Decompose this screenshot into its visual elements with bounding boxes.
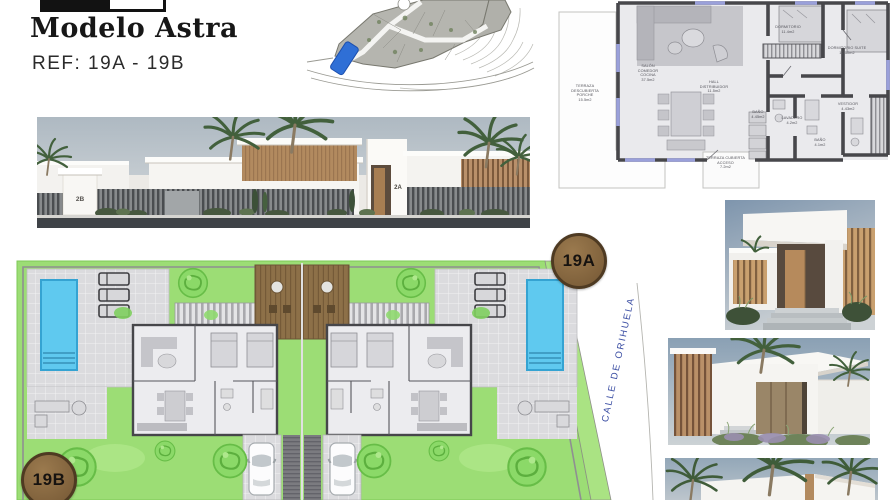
- location-map-drawing: [305, 0, 535, 95]
- room-label-lavadero: LAVADERO 4.2m2: [775, 116, 809, 125]
- brochure-page: Modelo Astra REF: 19A - 19B: [0, 0, 890, 500]
- page-title: Modelo Astra: [30, 13, 238, 44]
- villa-render-partial-drawing: [665, 458, 878, 500]
- room-label-terraza-descubierta: TERRAZA DESCUBIERTA PORCHE 15.5m2: [565, 84, 605, 103]
- glass-doors: [756, 382, 807, 434]
- road: [37, 218, 530, 228]
- room-label-bano: BAÑO 4.45m2: [743, 110, 773, 119]
- slat-fence-far-left: [37, 193, 67, 215]
- street-label: CALLE DE ORIHUELA: [600, 296, 637, 423]
- photo-villa-render: [668, 338, 870, 445]
- room-label-bano-suite: BAÑO 4.1m2: [805, 138, 835, 147]
- steps: [763, 308, 851, 330]
- room-label-salon: SALÓN COMEDOR COCINA 37.5m2: [628, 64, 668, 83]
- elevation-render: 2B 2A: [37, 117, 530, 228]
- villa-render-drawing: [668, 338, 870, 445]
- badge-19b: 19B: [21, 452, 77, 500]
- photo-entrance-render: [725, 200, 875, 330]
- room-label-hall: HALL DISTRIBUIDOR 11.5m2: [694, 80, 734, 94]
- room-label-dormitorio: DORMITORIO 11.4m2: [768, 25, 808, 34]
- location-map: [305, 0, 535, 95]
- left-wing: [729, 248, 777, 310]
- room-label-vestidor: VESTIDOR 4.43m2: [831, 102, 865, 111]
- unit-number-2a: 2A: [394, 185, 402, 191]
- badge-19a: 19A: [551, 233, 607, 289]
- entrance-render-drawing: [725, 200, 875, 330]
- brand-logo: [40, 0, 166, 12]
- entry-portal-2a: [367, 139, 407, 215]
- room-label-dormitorio-suite: DORMITORIO SUITE 12.50m2: [825, 46, 869, 55]
- room-label-terraza-cubierta: TERRAZA CUBIERTA ACCESO 7.2m2: [703, 156, 748, 170]
- wood-slat-screen: [670, 348, 716, 436]
- site-plan: CALLE DE ORIHUELA: [15, 253, 655, 500]
- roundabout: [398, 0, 410, 10]
- unit-number-2b: 2B: [76, 196, 85, 203]
- reference-label: REF: 19A - 19B: [32, 53, 185, 75]
- site-plan-drawing: CALLE DE ORIHUELA: [15, 253, 655, 500]
- street-outer-edge: [637, 283, 653, 500]
- curb: [37, 215, 530, 218]
- entry-pillar-2b: [58, 168, 102, 215]
- hatched-strip: [763, 44, 821, 58]
- left-house-parapet: [37, 161, 129, 165]
- gate: [165, 191, 199, 215]
- right-low-volume: [818, 380, 870, 434]
- wardrobe: [871, 96, 888, 154]
- brand-logo-fill: [43, 0, 110, 9]
- floor-plan: TERRAZA DESCUBIERTA PORCHE 15.5m2 SALÓN …: [555, 0, 890, 192]
- elevation-drawing: 2B 2A: [37, 117, 530, 228]
- photo-villa-render-partial: [665, 458, 878, 500]
